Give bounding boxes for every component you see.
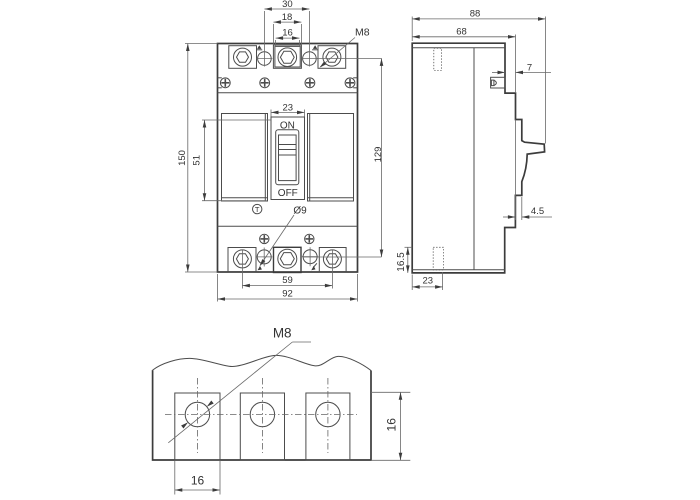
svg-text:4.5: 4.5: [531, 206, 544, 217]
svg-text:51: 51: [192, 155, 203, 166]
svg-text:Ø9: Ø9: [293, 206, 307, 217]
svg-text:M8: M8: [355, 26, 370, 38]
svg-text:59: 59: [282, 275, 293, 286]
svg-text:16.5: 16.5: [396, 252, 407, 272]
svg-text:16: 16: [385, 418, 399, 432]
svg-text:18: 18: [282, 12, 293, 23]
svg-text:16: 16: [191, 474, 205, 488]
svg-text:150: 150: [177, 150, 188, 166]
svg-text:92: 92: [282, 289, 293, 300]
svg-text:30: 30: [282, 0, 293, 10]
svg-text:7: 7: [527, 62, 532, 73]
svg-text:M8: M8: [273, 325, 292, 340]
svg-text:23: 23: [423, 276, 434, 287]
svg-text:68: 68: [456, 26, 467, 37]
svg-text:23: 23: [283, 103, 294, 114]
svg-text:ON: ON: [280, 121, 295, 132]
svg-text:16: 16: [282, 27, 293, 38]
svg-text:129: 129: [373, 147, 384, 163]
svg-text:T: T: [255, 205, 260, 214]
svg-text:OFF: OFF: [278, 188, 298, 199]
svg-text:88: 88: [470, 8, 481, 19]
